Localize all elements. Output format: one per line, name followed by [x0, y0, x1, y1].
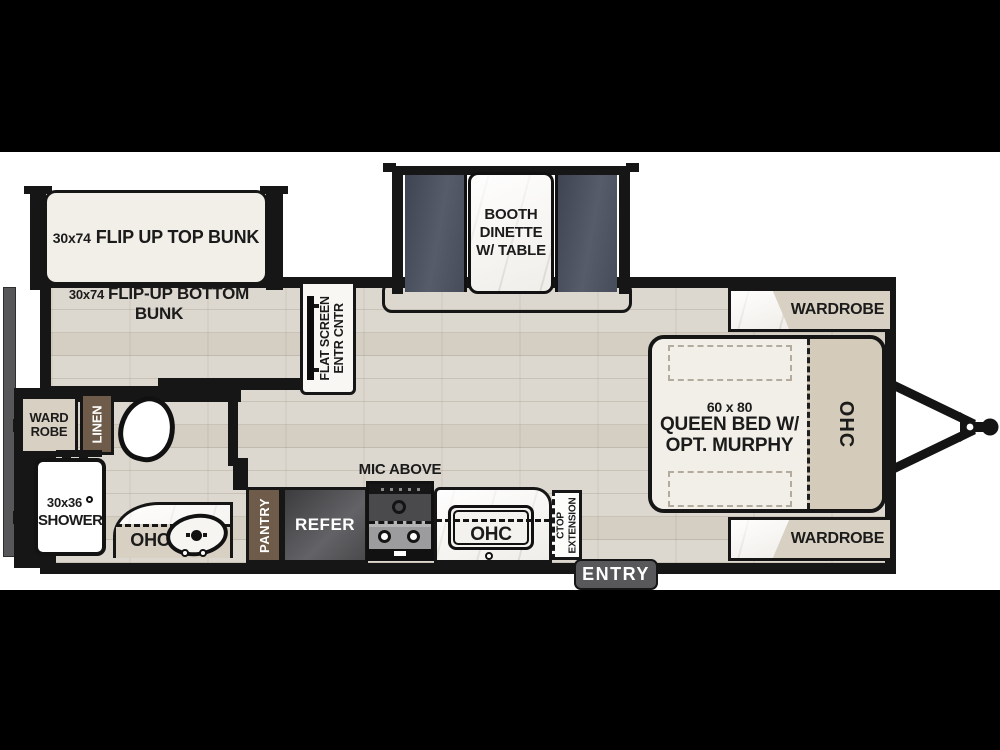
shower-name: SHOWER [38, 512, 102, 529]
entertainment-line2: ENTR CNTR [332, 296, 346, 380]
faucet-handle-icon [203, 533, 207, 537]
burner-icon [407, 530, 420, 543]
front-wardrobe-top: WARDROBE [728, 288, 893, 332]
entertainment-line1: FLAT SCREEN [318, 296, 332, 380]
top-bunk-name: FLIP UP TOP BUNK [96, 227, 260, 247]
knob-icon [485, 552, 493, 560]
dinette-slide-frame [392, 166, 403, 294]
stove-knobs [369, 484, 431, 494]
burner-icon [378, 530, 391, 543]
entry-door: ENTRY [574, 559, 658, 590]
bottom-bunk-size: 30x74 [69, 287, 104, 302]
slide-post [266, 186, 283, 290]
top-bunk-label: 30x74FLIP UP TOP BUNK [53, 227, 259, 248]
pocket-door [158, 378, 314, 390]
floorplan-canvas: 30x74FLIP UP TOP BUNK 30x74FLIP-UP BOTTO… [0, 0, 1000, 750]
shower-drain-icon [86, 496, 93, 503]
pillow-outline [668, 345, 792, 381]
countertop-extension: CTOP EXTENSION [552, 490, 582, 560]
flip-up-top-bunk: 30x74FLIP UP TOP BUNK [44, 190, 268, 285]
front-wardrobe-top-label: WARDROBE [787, 291, 888, 329]
stove-lower [369, 527, 431, 549]
stove [366, 481, 434, 561]
dinette-slide-frame [619, 166, 630, 294]
bed-overhead-cabinet: OHC [807, 339, 882, 509]
flat-screen-tv-icon [307, 296, 314, 380]
stove-base [369, 549, 431, 558]
dinette-line3: W/ TABLE [476, 242, 546, 260]
pantry: PANTRY [246, 487, 282, 563]
ctop-line1: CTOP [556, 497, 568, 553]
top-bunk-size: 30x74 [53, 230, 91, 246]
microwave-above-label: MIC ABOVE [348, 461, 452, 477]
dinette-label: BOOTH DINETTE W/ TABLE [476, 206, 546, 259]
shower-label: 30x36 SHOWER [38, 494, 102, 529]
entry-label: ENTRY [582, 564, 650, 585]
flip-up-bottom-bunk: 30x74FLIP-UP BOTTOM BUNK [45, 294, 273, 314]
rear-wardrobe-label: WARD ROBE [30, 411, 69, 440]
bed-line1: QUEEN BED W/ [652, 415, 807, 436]
knob-icon [181, 549, 189, 557]
wall-segment [233, 458, 248, 490]
corner-counter [731, 520, 789, 558]
front-wardrobe-bottom: WARDROBE [728, 517, 893, 561]
stove-handle [394, 551, 406, 556]
dinette-line1: BOOTH [476, 206, 546, 224]
queen-bed: 60 x 80 QUEEN BED W/ OPT. MURPHY OHC [648, 335, 886, 513]
pillow-outline [668, 471, 792, 507]
rear-wardrobe: WARD ROBE [20, 396, 78, 454]
bed-ohc-label: OHC [834, 400, 857, 447]
kitchen-ohc-label: OHC [448, 524, 534, 546]
wall-segment [228, 400, 238, 466]
dinette-table: BOOTH DINETTE W/ TABLE [468, 172, 554, 294]
shower-head-icon [56, 450, 102, 457]
bed-label: 60 x 80 QUEEN BED W/ OPT. MURPHY [652, 399, 807, 456]
counter-dashed-line [436, 519, 550, 522]
faucet-icon [191, 530, 202, 541]
entertainment-center: FLAT SCREEN ENTR CNTR [300, 281, 356, 395]
corner-counter [731, 291, 789, 329]
pantry-label: PANTRY [257, 498, 272, 553]
dinette-bench-left [405, 175, 467, 292]
refer-label: REFER [295, 515, 355, 535]
trailer-hitch-icon [886, 372, 1000, 482]
burner-icon [392, 500, 406, 514]
ctop-label: CTOP EXTENSION [556, 497, 579, 553]
rear-wardrobe-line1: WARD [30, 411, 69, 425]
front-wardrobe-bottom-label: WARDROBE [787, 520, 888, 558]
shower-size: 30x36 [47, 495, 82, 510]
bed-mattress: 60 x 80 QUEEN BED W/ OPT. MURPHY [652, 339, 807, 509]
bed-line2: OPT. MURPHY [652, 436, 807, 457]
linen-closet: LINEN [80, 393, 114, 455]
entertainment-label: FLAT SCREEN ENTR CNTR [318, 296, 347, 380]
bottom-bunk-label: 30x74FLIP-UP BOTTOM BUNK [45, 284, 273, 324]
bed-size: 60 x 80 [652, 399, 807, 415]
faucet-handle-icon [186, 533, 190, 537]
linen-label: LINEN [90, 405, 105, 443]
rear-wardrobe-line2: ROBE [30, 425, 69, 439]
refrigerator: REFER [282, 487, 368, 563]
ctop-line2: EXTENSION [567, 497, 579, 553]
shower: 30x36 SHOWER [34, 458, 106, 556]
dinette-bench-right [555, 175, 617, 292]
stove-upper [369, 494, 431, 521]
dinette-line2: DINETTE [476, 224, 546, 242]
knob-icon [199, 549, 207, 557]
bottom-bunk-name: FLIP-UP BOTTOM BUNK [108, 284, 249, 323]
